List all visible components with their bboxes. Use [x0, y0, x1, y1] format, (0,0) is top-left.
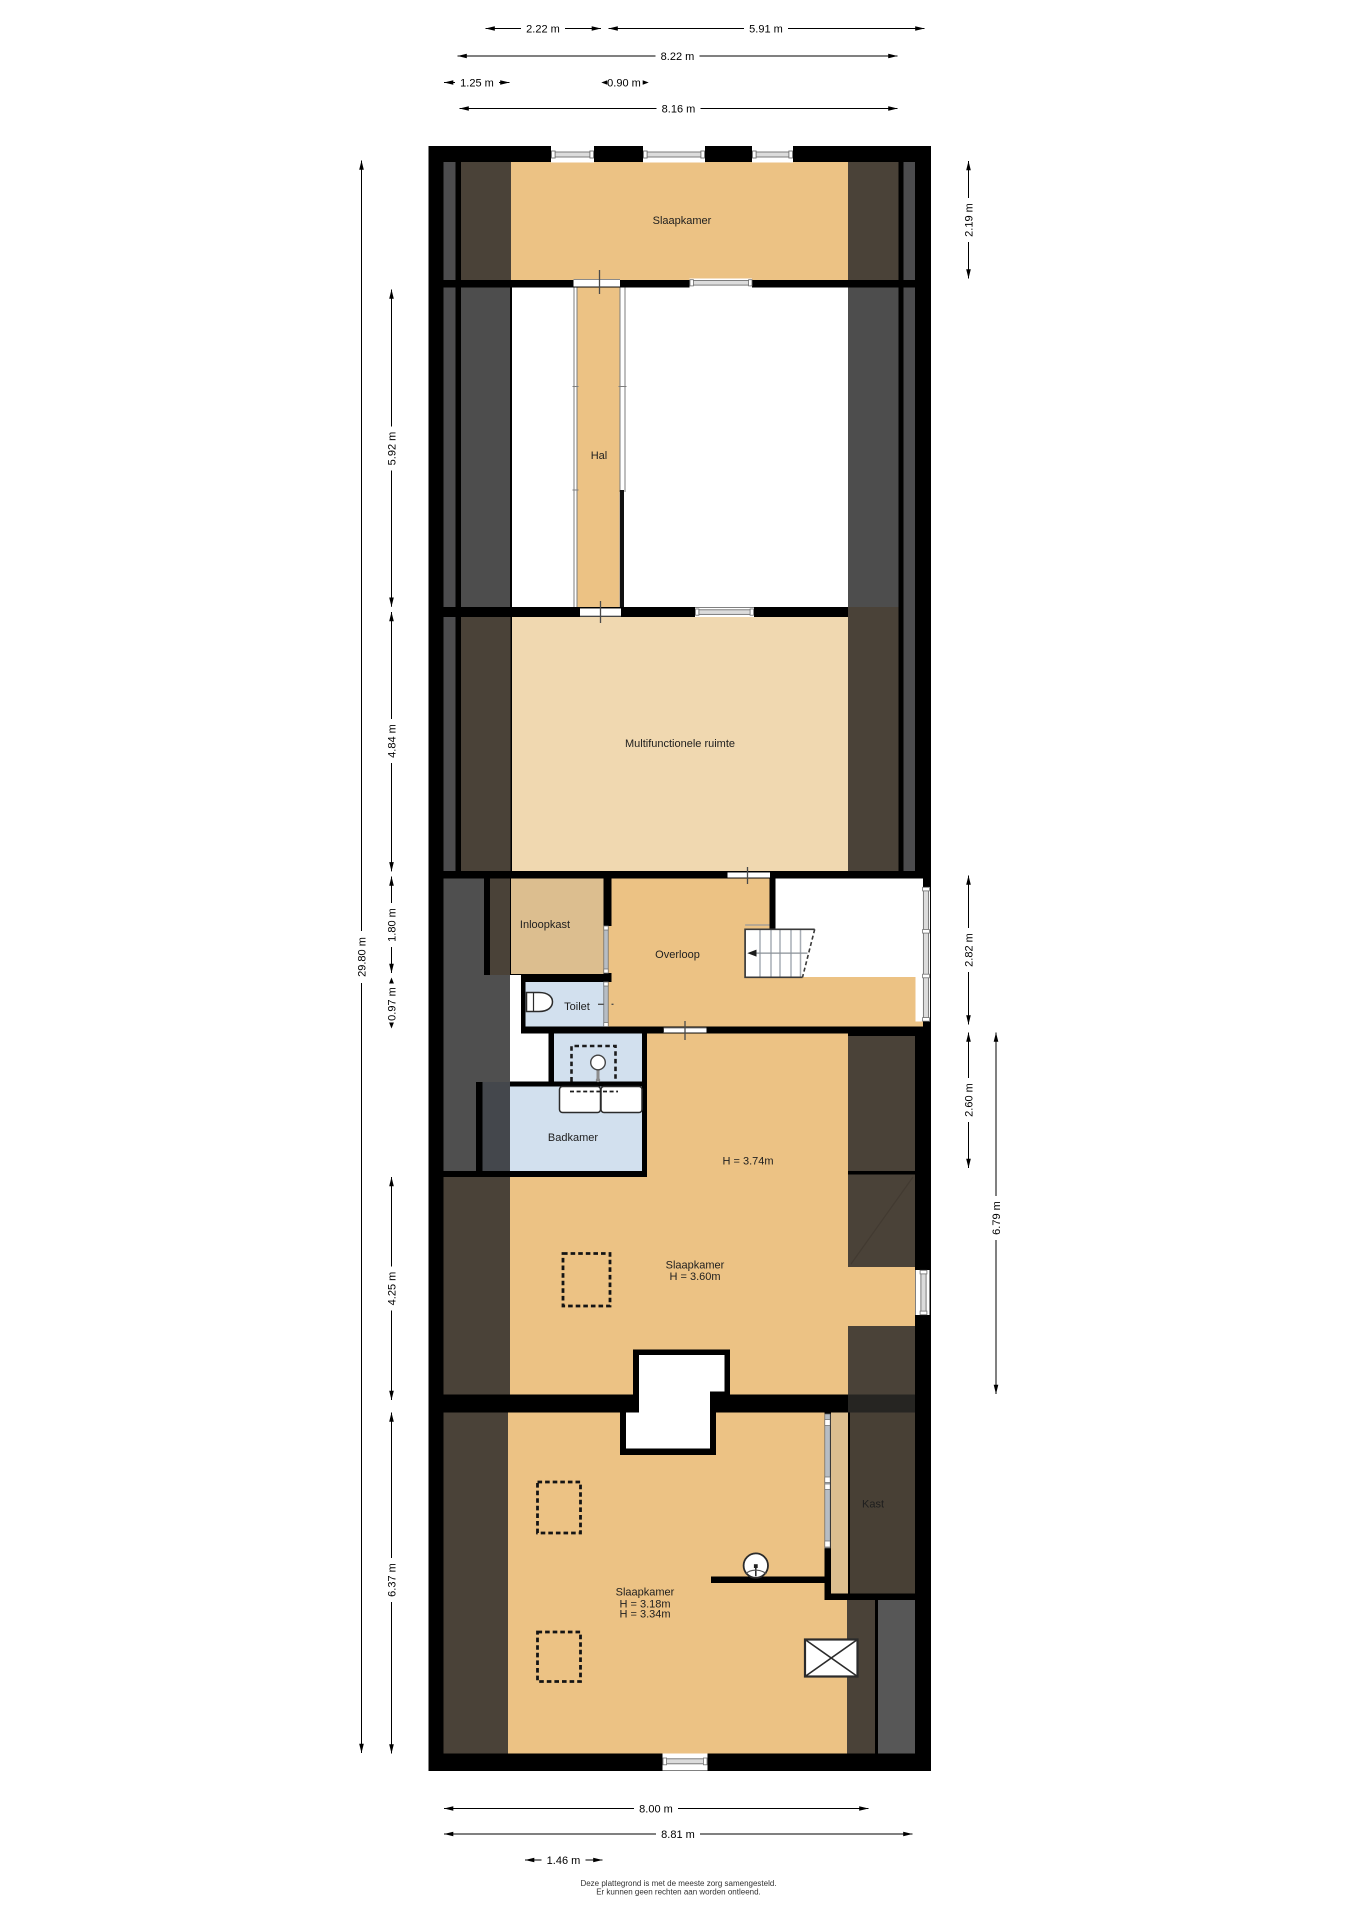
- svg-text:1.46 m: 1.46 m: [547, 1855, 581, 1867]
- svg-text:Slaapkamer: Slaapkamer: [666, 1260, 725, 1272]
- svg-text:H = 3.60m: H = 3.60m: [669, 1271, 720, 1283]
- svg-text:6.37 m: 6.37 m: [387, 1563, 399, 1597]
- svg-text:2.22 m: 2.22 m: [526, 24, 560, 36]
- svg-text:8.81 m: 8.81 m: [661, 1829, 695, 1841]
- svg-text:2.19 m: 2.19 m: [964, 203, 976, 237]
- svg-text:2.82 m: 2.82 m: [964, 933, 976, 967]
- svg-text:6.79 m: 6.79 m: [991, 1201, 1003, 1235]
- svg-text:Slaapkamer: Slaapkamer: [616, 1587, 675, 1599]
- svg-text:4.25 m: 4.25 m: [387, 1272, 399, 1306]
- svg-text:29.80 m: 29.80 m: [357, 937, 369, 977]
- svg-text:1.25 m: 1.25 m: [460, 78, 494, 90]
- svg-text:4.84 m: 4.84 m: [387, 724, 399, 758]
- svg-text:Overloop: Overloop: [655, 949, 700, 961]
- svg-text:Kast: Kast: [862, 1499, 884, 1511]
- svg-text:8.00 m: 8.00 m: [639, 1804, 673, 1816]
- svg-text:Hal: Hal: [591, 450, 608, 462]
- svg-text:0.97 m: 0.97 m: [387, 987, 399, 1021]
- svg-text:5.92 m: 5.92 m: [387, 432, 399, 466]
- svg-text:Er kunnen geen rechten aan wor: Er kunnen geen rechten aan worden ontlee…: [596, 1888, 761, 1897]
- svg-text:Multifunctionele ruimte: Multifunctionele ruimte: [625, 738, 735, 750]
- svg-text:2.60 m: 2.60 m: [964, 1083, 976, 1117]
- svg-text:H = 3.74m: H = 3.74m: [722, 1156, 773, 1168]
- svg-text:Badkamer: Badkamer: [548, 1132, 598, 1144]
- svg-text:1.80 m: 1.80 m: [387, 908, 399, 942]
- svg-text:H = 3.34m: H = 3.34m: [619, 1609, 670, 1621]
- svg-text:0.90 m: 0.90 m: [607, 78, 641, 90]
- svg-text:Slaapkamer: Slaapkamer: [653, 215, 712, 227]
- svg-text:8.22 m: 8.22 m: [661, 51, 695, 63]
- svg-text:8.16 m: 8.16 m: [662, 104, 696, 116]
- svg-text:Inloopkast: Inloopkast: [520, 919, 570, 931]
- svg-text:5.91 m: 5.91 m: [749, 24, 783, 36]
- svg-text:Toilet: Toilet: [564, 1001, 590, 1013]
